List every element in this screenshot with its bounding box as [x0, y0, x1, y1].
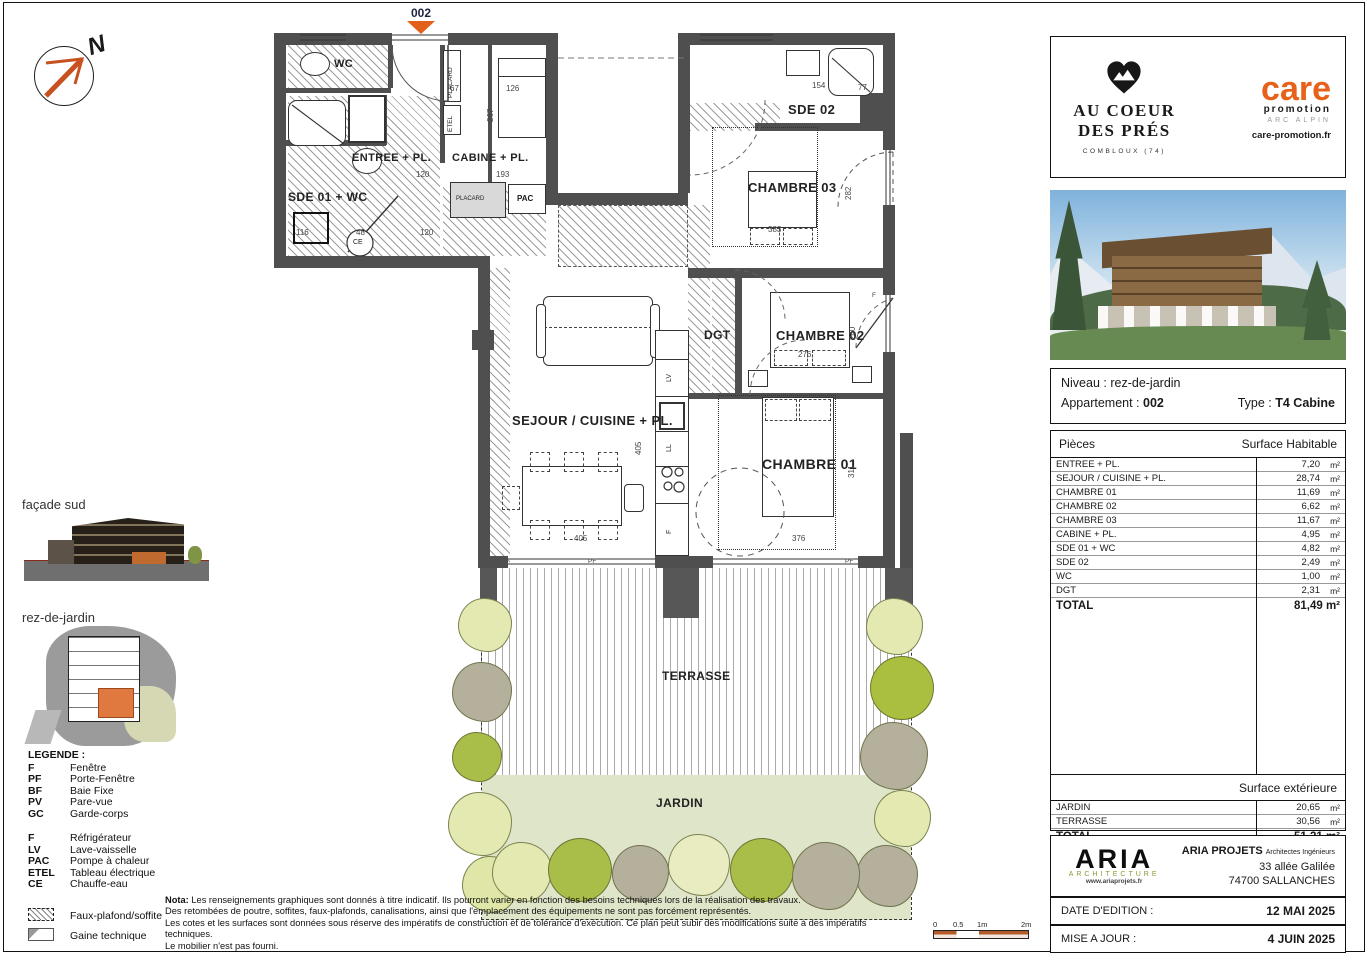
legend-label: Chauffe-eau [70, 879, 128, 891]
room-unit: m² [1320, 572, 1340, 582]
scale-bar-graphic [933, 930, 1029, 939]
nota-line: Nota: Les renseignements graphiques sont… [165, 895, 905, 906]
room-label-entree: ENTREE + PL. [352, 152, 431, 164]
exterior-row: TERRASSE 30,56 m² [1051, 815, 1345, 829]
bush [668, 834, 730, 896]
legend-item-gaine: Gaine technique [28, 927, 178, 947]
room-name: CHAMBRE 03 [1056, 515, 1268, 526]
room-label-dgt: DGT [704, 328, 731, 342]
care-promo-text: promotion [1198, 104, 1331, 115]
dim-label: F [872, 292, 876, 299]
room-surface: 2,49 [1268, 557, 1320, 568]
room-label-cabine: CABINE + PL. [452, 152, 529, 164]
bush [874, 790, 931, 847]
siteplan-unit-highlight [98, 688, 134, 718]
legend-title: LEGENDE : [28, 750, 178, 762]
legend-code: PF [28, 774, 70, 786]
aria-architecture-text: ARCHITECTURE [1051, 871, 1177, 878]
room-surface: 11,69 [1268, 487, 1320, 498]
legend-code: F [28, 833, 70, 845]
facade-bush [188, 546, 202, 564]
room-name: ENTREE + PL. [1056, 459, 1268, 470]
photo-chalet-body [1112, 256, 1262, 308]
care-site-text: care-promotion.fr [1198, 130, 1331, 141]
legend-label: Réfrigérateur [70, 833, 131, 845]
apartment-number: 002 [1143, 396, 1164, 410]
project-title-line1: AU COEUR [1051, 101, 1198, 121]
dim-label: 193 [496, 170, 509, 179]
table-row: CHAMBRE 02 6,62 m² [1051, 500, 1345, 514]
unit-info-box: Niveau : rez-de-jardin Appartement : 002… [1050, 368, 1346, 424]
hatch-icon [28, 908, 54, 921]
room-label-terrasse: TERRASSE [662, 669, 731, 683]
aria-url: www.ariaprojets.fr [1051, 878, 1177, 885]
legend-code: CE [28, 879, 70, 891]
exterior-unit: m² [1320, 817, 1340, 827]
siteplan-path [24, 710, 61, 744]
aria-firm-sub: Architectes Ingénieurs [1266, 849, 1335, 856]
facade-annex [48, 540, 74, 564]
scale-tick: 1m [977, 920, 987, 929]
facade-orange-units [132, 552, 166, 564]
dim-label: PF [588, 558, 596, 565]
nota-line: Les cotes et les surfaces sont données s… [165, 918, 905, 941]
edition-date-label: DATE D'EDITION : [1061, 905, 1153, 917]
table-header: Pièces Surface Habitable [1051, 431, 1345, 458]
room-label-jardin: JARDIN [656, 796, 703, 810]
dim-label: 67 [450, 84, 459, 93]
total-label: TOTAL [1056, 600, 1294, 612]
legend-label: Gaine technique [70, 931, 146, 943]
room-unit: m² [1320, 558, 1340, 568]
dim-label: 276 [798, 350, 811, 359]
table-row: CABINE + PL. 4,95 m² [1051, 528, 1345, 542]
legend-code: PV [28, 797, 70, 809]
aria-logo-text: ARIA [1051, 847, 1177, 871]
label-lv: LV [666, 374, 673, 382]
dim-label: 383 [768, 225, 781, 234]
col-pieces: Pièces [1059, 437, 1095, 451]
dim-label: 77 [858, 83, 867, 92]
promoter-logo: care promotion ARC ALPIN care-promotion.… [1198, 74, 1345, 141]
scale-bar: 0 0.5 1m 2m [933, 920, 1029, 939]
dim-label: 376 [792, 534, 805, 543]
siteplan-label: rez-de-jardin [22, 610, 95, 625]
tree [730, 838, 794, 902]
room-label-sejour: SEJOUR / CUISINE + PL. [512, 413, 673, 428]
bush [452, 662, 512, 722]
legend-code: PAC [28, 856, 70, 868]
surfaces-box: Pièces Surface Habitable ENTREE + PL. 7,… [1050, 430, 1346, 831]
table-total-row: TOTAL 81,49 m² [1051, 598, 1345, 614]
facade-building [72, 518, 184, 564]
table-row: CHAMBRE 03 11,67 m² [1051, 514, 1345, 528]
label-placard-low: PLACARD [456, 196, 484, 202]
exterior-row: JARDIN 20,65 m² [1051, 801, 1345, 815]
table-body: ENTREE + PL. 7,20 m² SEJOUR / CUISINE + … [1051, 458, 1345, 774]
label-ll: LL [666, 444, 673, 452]
table-filler [1051, 614, 1345, 774]
room-name: DGT [1056, 585, 1268, 596]
dim-label: 48 [356, 228, 365, 237]
scale-tick: 0 [933, 920, 937, 929]
architect-box: ARIA ARCHITECTURE www.ariaprojets.fr ARI… [1050, 835, 1346, 897]
legend-item: PV Pare-vue [28, 797, 178, 809]
legend-item: PF Porte-Fenêtre [28, 774, 178, 786]
total-value: 81,49 m² [1294, 600, 1340, 612]
nota-block: Nota: Les renseignements graphiques sont… [165, 895, 905, 952]
scale-tick: 2m [1021, 920, 1031, 929]
niveau-row: Niveau : rez-de-jardin [1051, 369, 1345, 390]
legend-item: F Réfrigérateur [28, 833, 178, 845]
legend-item: CE Chauffe-eau [28, 879, 178, 891]
aria-addr1: 33 allée Galilée [1177, 860, 1335, 874]
label-pac: PAC [517, 194, 533, 203]
room-label-sde01: SDE 01 + WC [288, 190, 367, 204]
room-surface: 11,67 [1268, 515, 1320, 526]
room-unit: m² [1320, 460, 1340, 470]
bush [452, 732, 502, 782]
dim-label: 126 [506, 84, 519, 93]
room-name: SDE 01 + WC [1056, 543, 1268, 554]
dim-label: PF [845, 558, 853, 565]
room-surface: 28,74 [1268, 473, 1320, 484]
dim-label: 405 [574, 534, 587, 543]
bush [866, 598, 923, 655]
update-date-box: MISE A JOUR : 4 JUIN 2025 [1050, 925, 1346, 953]
terrace-pillar [663, 568, 699, 618]
type-value: T4 Cabine [1275, 396, 1335, 410]
table-row: SDE 01 + WC 4,82 m² [1051, 542, 1345, 556]
exterior-surface: 30,56 [1268, 816, 1320, 827]
heart-mountain-icon [1105, 60, 1143, 96]
edition-date-value: 12 MAI 2025 [1266, 904, 1335, 918]
exterior-name: JARDIN [1056, 802, 1268, 813]
label-ce: CE [353, 239, 363, 246]
update-date-label: MISE A JOUR : [1061, 933, 1136, 945]
photo-pine [1302, 260, 1332, 340]
room-surface: 4,82 [1268, 543, 1320, 554]
nota-line: Le mobilier n'est pas fourni. [165, 941, 905, 952]
room-surface: 4,95 [1268, 529, 1320, 540]
room-surface: 7,20 [1268, 459, 1320, 470]
legend-item: GC Garde-corps [28, 809, 178, 821]
room-name: CHAMBRE 01 [1056, 487, 1268, 498]
table-row: DGT 2,31 m² [1051, 584, 1345, 598]
room-surface: 2,31 [1268, 585, 1320, 596]
bush [458, 598, 512, 652]
dim-label: 405 [634, 442, 643, 455]
room-unit: m² [1320, 530, 1340, 540]
facade-drawing [24, 514, 209, 582]
building-photo [1050, 190, 1346, 360]
room-label-wc: WC [334, 58, 353, 70]
care-arc-text: ARC ALPIN [1198, 117, 1331, 124]
dim-label: 240 [848, 327, 857, 340]
aria-firm: ARIA PROJETS [1182, 845, 1263, 857]
exterior-surface: 20,65 [1268, 802, 1320, 813]
nota-text: Les renseignements graphiques sont donné… [191, 895, 800, 905]
architect-info: ARIA PROJETS Architectes Ingénieurs 33 a… [1177, 844, 1345, 888]
legend-label: Pompe à chaleur [70, 856, 149, 868]
scale-tick: 0.5 [953, 920, 963, 929]
room-name: CABINE + PL. [1056, 529, 1268, 540]
aria-addr2: 74700 SALLANCHES [1177, 874, 1335, 888]
legend-code: GC [28, 809, 70, 821]
room-label-sde02: SDE 02 [788, 102, 835, 117]
apartment-label: Appartement : [1061, 396, 1140, 410]
nota-line: Des retombées de poutre, soffites, faux-… [165, 906, 905, 917]
nota-title: Nota: [165, 895, 189, 905]
apartment-row: Appartement : 002 Type : T4 Cabine [1051, 390, 1345, 410]
label-placard-top: PLACARD [447, 67, 454, 98]
room-unit: m² [1320, 502, 1340, 512]
room-name: SDE 02 [1056, 557, 1268, 568]
room-unit: m² [1320, 488, 1340, 498]
project-title-line2: DES PRÉS [1051, 121, 1198, 141]
dim-label: 120 [416, 170, 429, 179]
exterior-header-label: Surface extérieure [1239, 781, 1337, 795]
legend-item-faux-plafond: Faux-plafond/soffite [28, 907, 178, 927]
facade-label: façade sud [22, 497, 86, 512]
dim-label: 267 [486, 109, 495, 122]
table-divider [1256, 458, 1257, 774]
niveau-label: Niveau : [1061, 376, 1107, 390]
label-etel: ETEL [447, 116, 454, 132]
legend: LEGENDE : F Fenêtre PF Porte-Fenêtre BF … [28, 750, 178, 947]
legend-label: Pare-vue [70, 797, 113, 809]
room-unit: m² [1320, 516, 1340, 526]
gaine-icon [28, 928, 54, 941]
room-unit: m² [1320, 544, 1340, 554]
room-surface: 1,00 [1268, 571, 1320, 582]
bush [492, 842, 552, 902]
dim-label: 282 [844, 187, 853, 200]
room-name: WC [1056, 571, 1268, 582]
dim-label: 311 [847, 465, 856, 478]
project-logo-box: AU COEUR DES PRÉS COMBLOUX (74) care pro… [1050, 36, 1346, 178]
dim-label: 116 [296, 228, 309, 237]
edition-date-box: DATE D'EDITION : 12 MAI 2025 [1050, 897, 1346, 925]
table-row: WC 1,00 m² [1051, 570, 1345, 584]
room-label-ch01: CHAMBRE 01 [762, 456, 857, 472]
bush [612, 845, 669, 902]
dim-label: 154 [812, 81, 825, 90]
exterior-header: Surface extérieure [1051, 774, 1345, 801]
room-name: CHAMBRE 02 [1056, 501, 1268, 512]
siteplan-drawing [28, 626, 188, 748]
tree [870, 656, 934, 720]
table-row: SEJOUR / CUISINE + PL. 28,74 m² [1051, 472, 1345, 486]
exterior-name: TERRASSE [1056, 816, 1268, 827]
exterior-unit: m² [1320, 803, 1340, 813]
update-date-value: 4 JUIN 2025 [1268, 932, 1335, 946]
room-unit: m² [1320, 474, 1340, 484]
tree [548, 838, 612, 902]
aria-logo: ARIA ARCHITECTURE www.ariaprojets.fr [1051, 847, 1177, 885]
room-surface: 6,62 [1268, 501, 1320, 512]
room-unit: m² [1320, 586, 1340, 596]
table-row: ENTREE + PL. 7,20 m² [1051, 458, 1345, 472]
table-row: SDE 02 2,49 m² [1051, 556, 1345, 570]
care-logo-text: care [1198, 74, 1331, 104]
plan-sheet: { "plan": { "unit_marker": "002", "north… [0, 0, 1368, 962]
label-f: F [666, 530, 673, 534]
room-label-ch03: CHAMBRE 03 [748, 180, 837, 195]
niveau-value: rez-de-jardin [1110, 376, 1180, 390]
project-logo: AU COEUR DES PRÉS COMBLOUX (74) [1051, 60, 1198, 155]
bush [860, 722, 928, 790]
legend-label: Faux-plafond/soffite [70, 911, 162, 923]
dim-label: 120 [420, 228, 433, 237]
table-row: CHAMBRE 01 11,69 m² [1051, 486, 1345, 500]
bush [448, 792, 512, 856]
legend-label: Garde-corps [70, 809, 128, 821]
room-name: SEJOUR / CUISINE + PL. [1056, 473, 1268, 484]
legend-label: Porte-Fenêtre [70, 774, 135, 786]
type-label: Type : [1238, 396, 1272, 410]
photo-foreground [1050, 326, 1346, 360]
legend-item: PAC Pompe à chaleur [28, 856, 178, 868]
col-surface: Surface Habitable [1242, 437, 1337, 451]
project-location: COMBLOUX (74) [1051, 148, 1198, 155]
